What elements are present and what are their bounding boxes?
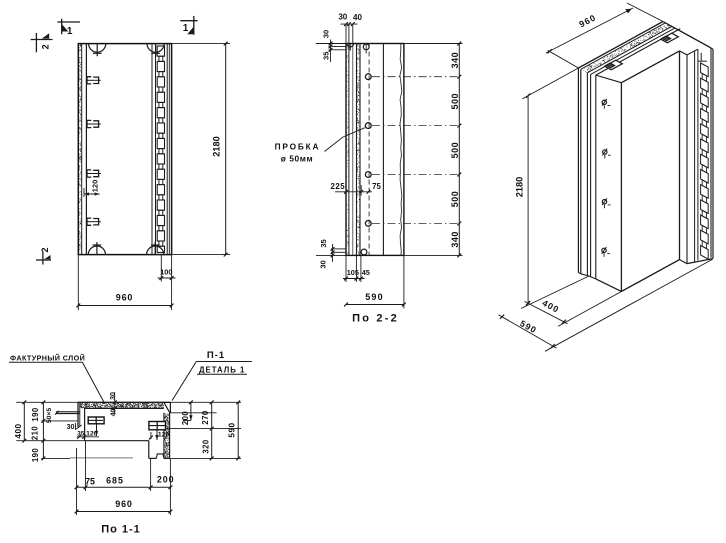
svg-text:2: 2 (40, 247, 50, 252)
svg-text:960: 960 (116, 293, 133, 303)
svg-text:500: 500 (450, 93, 460, 110)
svg-text:75: 75 (372, 182, 381, 191)
svg-text:500: 500 (450, 191, 460, 208)
svg-text:1: 1 (183, 23, 189, 34)
svg-text:400: 400 (13, 423, 23, 438)
svg-text:По 1-1: По 1-1 (101, 524, 141, 536)
svg-text:30: 30 (338, 13, 347, 22)
svg-text:ø 50мм: ø 50мм (281, 154, 313, 164)
svg-text:35: 35 (319, 239, 328, 247)
svg-text:35: 35 (322, 52, 331, 60)
svg-text:120: 120 (158, 432, 170, 439)
svg-text:40: 40 (353, 13, 362, 22)
svg-text:1: 1 (67, 26, 73, 37)
svg-text:960: 960 (115, 499, 132, 509)
svg-text:75: 75 (85, 476, 95, 486)
svg-text:ФАКТУРНЫЙ СЛОЙ: ФАКТУРНЫЙ СЛОЙ (10, 353, 85, 362)
svg-text:500: 500 (450, 142, 460, 159)
svg-text:320: 320 (201, 439, 210, 453)
svg-text:200: 200 (157, 475, 175, 485)
svg-text:По 2-2: По 2-2 (352, 313, 399, 325)
svg-text:ДЕТАЛЬ 1: ДЕТАЛЬ 1 (199, 366, 245, 375)
svg-text:685: 685 (106, 475, 124, 485)
svg-text:100: 100 (160, 267, 172, 276)
svg-text:30: 30 (319, 260, 328, 268)
svg-text:2180: 2180 (212, 136, 222, 156)
svg-text:2: 2 (41, 44, 51, 49)
svg-text:190: 190 (31, 407, 40, 421)
svg-text:340: 340 (450, 52, 460, 69)
svg-text:190: 190 (31, 448, 40, 462)
svg-text:590: 590 (365, 292, 384, 302)
svg-text:30: 30 (110, 392, 117, 400)
svg-text:45: 45 (362, 268, 370, 277)
svg-text:225: 225 (331, 182, 346, 191)
svg-text:30: 30 (321, 30, 330, 38)
svg-text:590: 590 (226, 422, 236, 437)
svg-text:105: 105 (347, 268, 359, 277)
svg-text:30: 30 (67, 422, 75, 431)
svg-text:340: 340 (450, 231, 460, 248)
svg-text:210: 210 (30, 426, 39, 440)
svg-text:ПРОБКА: ПРОБКА (275, 142, 321, 152)
svg-text:270: 270 (201, 410, 210, 424)
svg-text:120: 120 (91, 180, 100, 193)
svg-text:2180: 2180 (515, 177, 525, 197)
svg-text:П-1: П-1 (207, 350, 225, 361)
